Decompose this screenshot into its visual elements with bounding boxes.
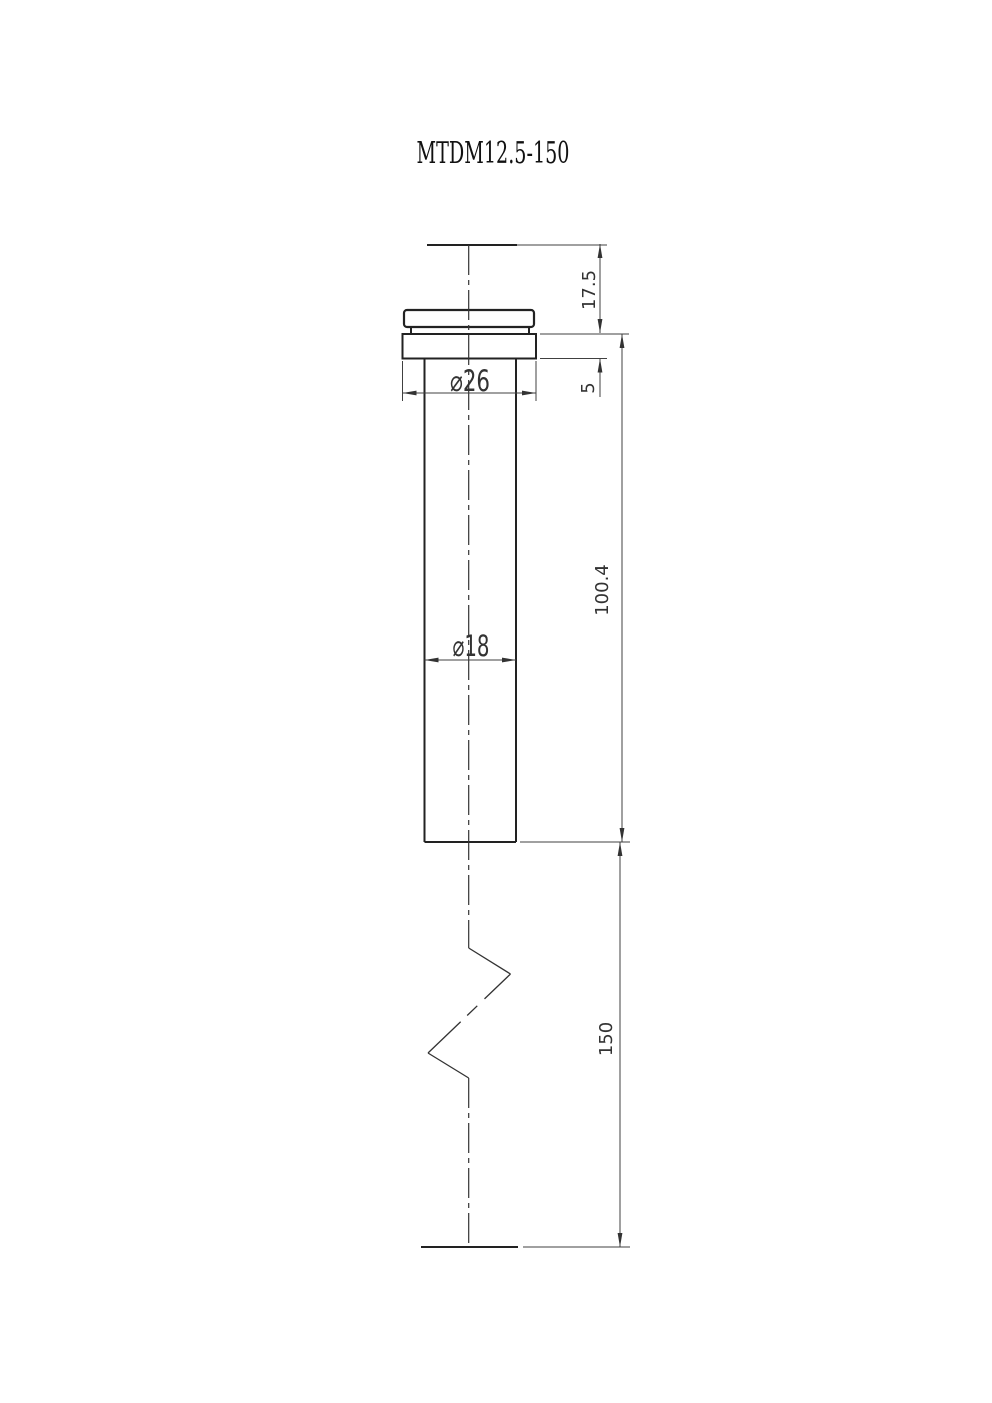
arrowhead-150-top — [618, 842, 623, 856]
dim-label-dia18: ⌀18 — [453, 629, 490, 663]
arrowhead-dia26-right — [522, 391, 536, 396]
arrowhead-dia26-left — [403, 391, 417, 396]
arrowhead-100-4-top — [620, 334, 625, 348]
drawing-sheet: MTDM12.5-150 — [0, 0, 992, 1403]
dim-label-5: 5 — [578, 382, 599, 393]
dimension-labels: ⌀26 ⌀18 17.5 5 100.4 150 — [450, 270, 617, 1056]
dim-label-dia26: ⌀26 — [450, 364, 490, 398]
part-title: MTDM12.5-150 — [417, 136, 570, 171]
arrowhead-100-4-bottom — [620, 828, 625, 842]
arrowhead-dia18-left — [425, 658, 439, 663]
break-line-upper-diagonal — [469, 948, 511, 974]
arrowhead-5 — [598, 359, 603, 373]
technical-drawing: MTDM12.5-150 — [0, 0, 992, 1403]
dim-label-17-5: 17.5 — [579, 270, 600, 310]
arrowhead-17-5-top — [598, 244, 603, 258]
arrowhead-dia18-right — [502, 658, 516, 663]
arrowhead-150-bottom — [618, 1233, 623, 1247]
arrowhead-17-5-bottom — [598, 319, 603, 333]
dim-label-150: 150 — [596, 1022, 617, 1056]
break-line-lower-diagonal — [428, 1053, 469, 1078]
break-line-long-diagonal — [428, 974, 511, 1053]
dim-label-100-4: 100.4 — [592, 564, 613, 616]
